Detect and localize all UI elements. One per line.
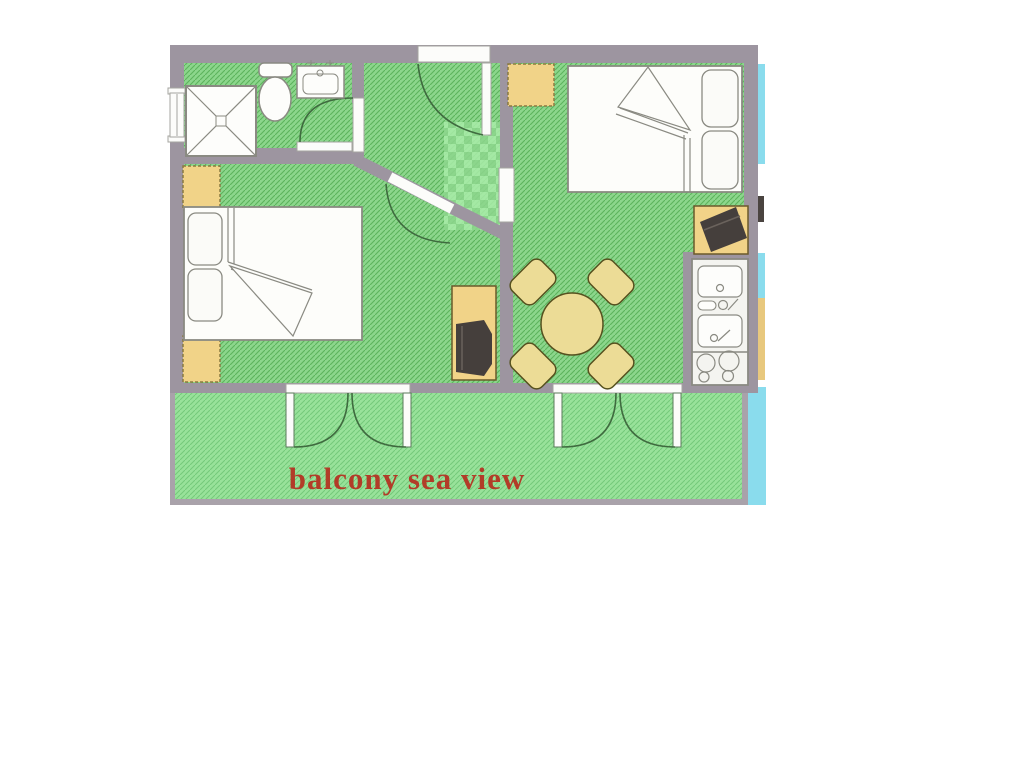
floor-plan-drawing: balcony sea view xyxy=(0,0,1024,768)
neighbour-strip xyxy=(757,298,765,380)
entry-door-leaf xyxy=(482,63,491,135)
sea-strip-bottom xyxy=(748,387,766,505)
nightstand-icon xyxy=(183,166,220,210)
toilet-icon xyxy=(259,63,292,121)
balcony: balcony sea view xyxy=(170,393,748,505)
balcony-wall-right xyxy=(742,393,748,505)
livingroom-door-opening xyxy=(499,168,514,222)
wall-kitchen-left xyxy=(683,252,692,385)
pillow-icon xyxy=(702,131,738,189)
wall-hall-livingroom xyxy=(500,63,513,383)
nightstand-icon xyxy=(508,64,554,106)
balcony-left-door-leaf-b xyxy=(403,393,411,447)
pillow-icon xyxy=(188,213,222,265)
sea-strip-middle xyxy=(757,253,765,298)
sink-icon xyxy=(297,60,344,98)
balcony-door-opening-left xyxy=(286,384,410,393)
pillow-icon xyxy=(702,70,738,127)
tv-stand-icon xyxy=(694,206,748,254)
sink-basin xyxy=(698,266,742,297)
table-icon xyxy=(541,293,603,355)
nightstand-icon xyxy=(183,336,220,382)
sea-strip-top xyxy=(757,64,765,164)
kitchen-icon xyxy=(692,259,748,385)
entry-door-opening xyxy=(418,46,490,62)
double-bed-icon xyxy=(184,207,362,340)
balcony-wall-bottom xyxy=(170,499,748,505)
balcony-right-door-leaf-b xyxy=(673,393,681,447)
balcony-label: balcony sea view xyxy=(289,461,525,496)
wall-bathroom-right xyxy=(352,63,364,103)
pillow-icon xyxy=(188,269,222,321)
sink-basin xyxy=(698,315,742,347)
balcony-left-door-leaf-a xyxy=(286,393,294,447)
faucet-icon xyxy=(698,301,716,310)
balcony-wall-left xyxy=(170,393,175,505)
balcony-right-door-leaf-a xyxy=(554,393,562,447)
shower-icon xyxy=(186,86,256,156)
double-bed-icon xyxy=(568,66,742,192)
floor-plan-page: balcony sea view xyxy=(0,0,1024,768)
bathroom-door-opening xyxy=(353,98,364,152)
desk-tv-icon xyxy=(452,286,496,380)
bathroom-door-leaf xyxy=(297,142,352,151)
balcony-door-opening-right xyxy=(553,384,682,393)
